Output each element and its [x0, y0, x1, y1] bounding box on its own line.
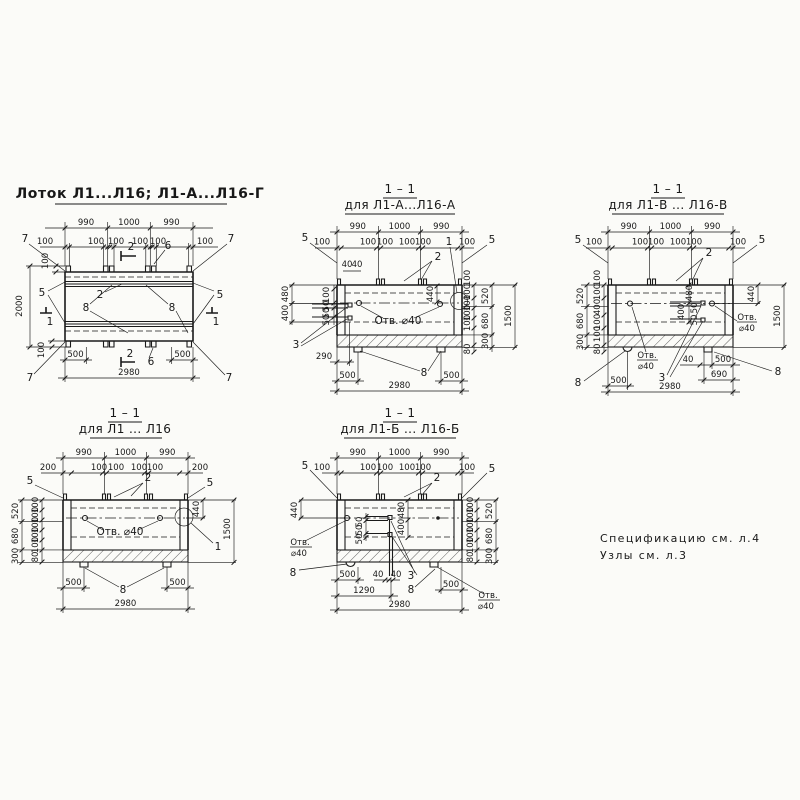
dim-500: 500 [67, 350, 83, 360]
dim-500: 500 [174, 350, 190, 360]
dim-100: 100 [686, 238, 702, 248]
slab-hatched [63, 550, 188, 562]
note-spec: Спецификацию см. л.4 [600, 532, 760, 545]
dim-40: 40 [391, 570, 402, 580]
hole-note: Отв. ⌀40 [97, 526, 144, 538]
dim-100: 100 [360, 463, 376, 473]
part-label-7: 7 [226, 372, 233, 384]
dim-100: 100 [415, 463, 431, 473]
dim-680: 680 [481, 313, 491, 329]
feet [80, 562, 171, 567]
body-outline [63, 500, 188, 550]
dim-990: 990 [433, 448, 449, 458]
part-label-5: 5 [489, 463, 496, 475]
dim-200: 200 [40, 463, 56, 473]
section-mark-1: 1 [213, 316, 220, 328]
section-a-view: 1 – 1 для Л1-А...Л16-А 990 1000 990 100 … [281, 182, 517, 395]
dim-100: 100 [459, 463, 475, 473]
view-subtitle: для Л1 ... Л16 [79, 422, 172, 436]
dim-100: 100 [648, 238, 664, 248]
dim-680: 680 [576, 313, 586, 329]
dim-80: 80 [593, 344, 603, 355]
dim-500: 500 [610, 376, 626, 386]
dim-50: 50 [355, 534, 365, 545]
part-label-2: 2 [145, 472, 152, 484]
dim-100: 100 [593, 284, 603, 300]
dim-100: 100 [459, 238, 475, 248]
part-label-3: 3 [408, 570, 415, 582]
dim-300: 300 [11, 548, 21, 564]
part-label-5: 5 [27, 475, 34, 487]
part-label-8: 8 [169, 302, 176, 314]
view-title: 1 – 1 [385, 406, 416, 420]
view-title: 1 – 1 [110, 406, 141, 420]
hole-note-line2: ⌀40 [638, 362, 654, 372]
hole-note-line1: Отв. [637, 351, 656, 361]
note-nodes: Узлы см. л.3 [600, 549, 687, 562]
dim-100: 100 [31, 537, 41, 553]
hole-note-line1: Отв. [737, 313, 756, 323]
part-label-8: 8 [575, 377, 582, 389]
dim-2000: 2000 [15, 295, 25, 317]
dim-520: 520 [481, 288, 491, 304]
top-dims [586, 226, 745, 279]
plan-left-dims [26, 266, 66, 347]
part-label-8: 8 [775, 366, 782, 378]
top-dims [322, 452, 474, 494]
detail-balloon [175, 508, 193, 526]
dim-990: 990 [350, 222, 366, 232]
dim-100: 100 [463, 270, 473, 286]
dim-500: 500 [169, 578, 185, 588]
hole-note-line2: ⌀40 [739, 324, 755, 334]
dim-100: 100 [37, 342, 47, 358]
dim-200: 200 [192, 463, 208, 473]
part-label-6: 6 [148, 356, 155, 368]
blueprint-svg: Лоток Л1...Л16; Л1-А...Л16-Г 990 1000 99… [0, 0, 800, 800]
dim-990: 990 [163, 218, 179, 228]
view-title: 1 – 1 [385, 182, 416, 196]
dim-520: 520 [11, 503, 21, 519]
part-label-2: 2 [706, 247, 713, 259]
part-label-5: 5 [759, 234, 766, 246]
body-outline [608, 285, 733, 335]
dim-990: 990 [704, 222, 720, 232]
dim-680: 680 [11, 528, 21, 544]
dim-990: 990 [350, 448, 366, 458]
dim-100: 100 [314, 238, 330, 248]
part-label-7: 7 [27, 372, 34, 384]
part-label-3: 3 [293, 339, 300, 351]
dim-990: 990 [433, 222, 449, 232]
dim-440: 440 [426, 286, 436, 302]
section-mark-1: 1 [47, 316, 54, 328]
dim-2980: 2980 [389, 600, 411, 610]
hole-note-line2: ⌀40 [478, 602, 494, 612]
section-mark-2: 2 [128, 241, 135, 253]
part-label-8: 8 [421, 367, 428, 379]
dim-100: 100 [632, 238, 648, 248]
part-label-1: 1 [446, 236, 453, 248]
dim-50: 50 [322, 315, 332, 326]
hole-note-line1: Отв. [290, 538, 309, 548]
dim-520: 520 [485, 503, 495, 519]
dim-1000: 1000 [389, 448, 411, 458]
dim-690: 690 [711, 370, 727, 380]
part-label-5: 5 [217, 289, 224, 301]
dim-80: 80 [463, 344, 473, 355]
view-subtitle: для Л1-А...Л16-А [345, 198, 456, 212]
part-label-5: 5 [207, 477, 214, 489]
dim-1500: 1500 [223, 518, 233, 540]
dim-100: 100 [730, 238, 746, 248]
hole-note: Отв. ⌀40 [375, 315, 422, 327]
feet [354, 347, 445, 352]
section-plain-view: 1 – 1 для Л1 ... Л16 990 1000 990 200 10… [11, 406, 236, 613]
hole-40 [438, 302, 443, 307]
dim-480: 480 [685, 285, 695, 301]
dim-2980: 2980 [118, 368, 140, 378]
dim-400: 400 [397, 519, 407, 535]
ref-leaders [35, 483, 205, 498]
hole-note-line2: ⌀40 [291, 549, 307, 559]
dim-440: 440 [290, 502, 300, 518]
dim-500: 500 [339, 570, 355, 580]
dim-1000: 1000 [118, 218, 140, 228]
dim-100: 100 [415, 238, 431, 248]
part-label-1: 1 [215, 541, 222, 553]
view-title: 1 – 1 [653, 182, 684, 196]
dim-300: 300 [576, 334, 586, 350]
part-label-7: 7 [22, 233, 29, 245]
dim-500: 500 [65, 578, 81, 588]
dim-100: 100 [399, 463, 415, 473]
dim-480: 480 [281, 286, 291, 302]
dim-500: 500 [715, 355, 731, 365]
part-label-8: 8 [120, 584, 127, 596]
slab-hatched [337, 550, 462, 562]
dim-990: 990 [78, 218, 94, 228]
dim-100: 100 [314, 463, 330, 473]
body-outline [337, 285, 462, 335]
dim-1500: 1500 [504, 305, 514, 327]
dim-480: 480 [397, 502, 407, 518]
dim-100: 100 [377, 238, 393, 248]
dim-1000: 1000 [660, 222, 682, 232]
view-subtitle: для Л1-Б ... Л16-Б [340, 422, 459, 436]
drawing-sheet: Лоток Л1...Л16; Л1-А...Л16-Г 990 1000 99… [0, 0, 800, 800]
dim-440: 440 [192, 501, 202, 517]
hole-note-line1: Отв. [478, 591, 497, 601]
part-label-8: 8 [290, 567, 297, 579]
dim-100: 100 [593, 326, 603, 342]
dim-300: 300 [481, 333, 491, 349]
dim-100: 100 [41, 253, 51, 269]
dim-1000: 1000 [389, 222, 411, 232]
dim-990: 990 [159, 448, 175, 458]
view-subtitle: для Л1-В ... Л16-В [608, 198, 727, 212]
dim-100: 100 [108, 463, 124, 473]
plan-left-ticks [28, 264, 59, 350]
dim-100: 100 [463, 315, 473, 331]
dim-40: 40 [352, 260, 363, 270]
dim-100: 100 [197, 237, 213, 247]
part-label-7: 7 [228, 233, 235, 245]
dim-40: 40 [373, 570, 384, 580]
dim-440: 440 [747, 286, 757, 302]
dim-100: 100 [670, 238, 686, 248]
dim-100: 100 [593, 270, 603, 286]
sheet-notes: Спецификацию см. л.4 Узлы см. л.3 [600, 532, 760, 562]
dim-40: 40 [683, 355, 694, 365]
dim-100: 100 [108, 237, 124, 247]
dim-500: 500 [443, 580, 459, 590]
dim-100: 100 [466, 537, 476, 553]
dim-290: 290 [316, 352, 332, 362]
dim-400: 400 [677, 304, 687, 320]
dim-400: 400 [281, 305, 291, 321]
dim-520: 520 [576, 288, 586, 304]
part-label-5: 5 [39, 287, 46, 299]
part-label-2: 2 [435, 251, 442, 263]
dim-100: 100 [399, 238, 415, 248]
slab-hatched [337, 335, 462, 347]
dim-50: 50 [690, 315, 700, 326]
dim-300: 300 [485, 548, 495, 564]
part-label-2: 2 [434, 472, 441, 484]
hole-marker [436, 516, 440, 520]
part-label-5: 5 [302, 460, 309, 472]
dim-100: 100 [88, 237, 104, 247]
part-label-5: 5 [489, 234, 496, 246]
dim-100: 100 [360, 238, 376, 248]
dim-100: 100 [377, 463, 393, 473]
dim-100: 100 [37, 237, 53, 247]
plan-view: Лоток Л1...Л16; Л1-А...Л16-Г 990 1000 99… [15, 186, 264, 384]
part-label-8: 8 [408, 584, 415, 596]
dim-2980: 2980 [389, 381, 411, 391]
embed-plates [366, 516, 393, 577]
slab-hatched [608, 335, 733, 347]
dim-400: 400 [593, 299, 603, 315]
walls-stirrups [609, 279, 733, 335]
dim-80: 80 [31, 552, 41, 563]
dim-500: 500 [339, 371, 355, 381]
dim-100: 100 [586, 238, 602, 248]
dim-1290: 1290 [353, 586, 375, 596]
dim-1000: 1000 [115, 448, 137, 458]
dim-500: 500 [443, 371, 459, 381]
dim-2980: 2980 [659, 382, 681, 392]
top-ticks [61, 456, 191, 476]
section-v-view: 1 – 1 для Л1-В ... Л16-В 990 1000 990 10… [575, 182, 787, 396]
section-b-view: 1 – 1 для Л1-Б ... Л16-Б 990 1000 990 10… [290, 406, 500, 614]
dim-990: 990 [621, 222, 637, 232]
dim-100: 100 [91, 463, 107, 473]
part-label-5: 5 [575, 234, 582, 246]
dim-1500: 1500 [773, 305, 783, 327]
part-label-8: 8 [83, 302, 90, 314]
view-title: Лоток Л1...Л16; Л1-А...Л16-Г [16, 186, 265, 202]
part-label-6: 6 [165, 240, 172, 252]
top-dims [41, 452, 203, 494]
dim-80: 80 [466, 552, 476, 563]
part-label-2: 2 [97, 289, 104, 301]
walls-stirrups [64, 494, 188, 550]
part-label-5: 5 [302, 232, 309, 244]
dim-2980: 2980 [115, 599, 137, 609]
dim-680: 680 [485, 528, 495, 544]
section-mark-2: 2 [127, 348, 134, 360]
dim-990: 990 [76, 448, 92, 458]
